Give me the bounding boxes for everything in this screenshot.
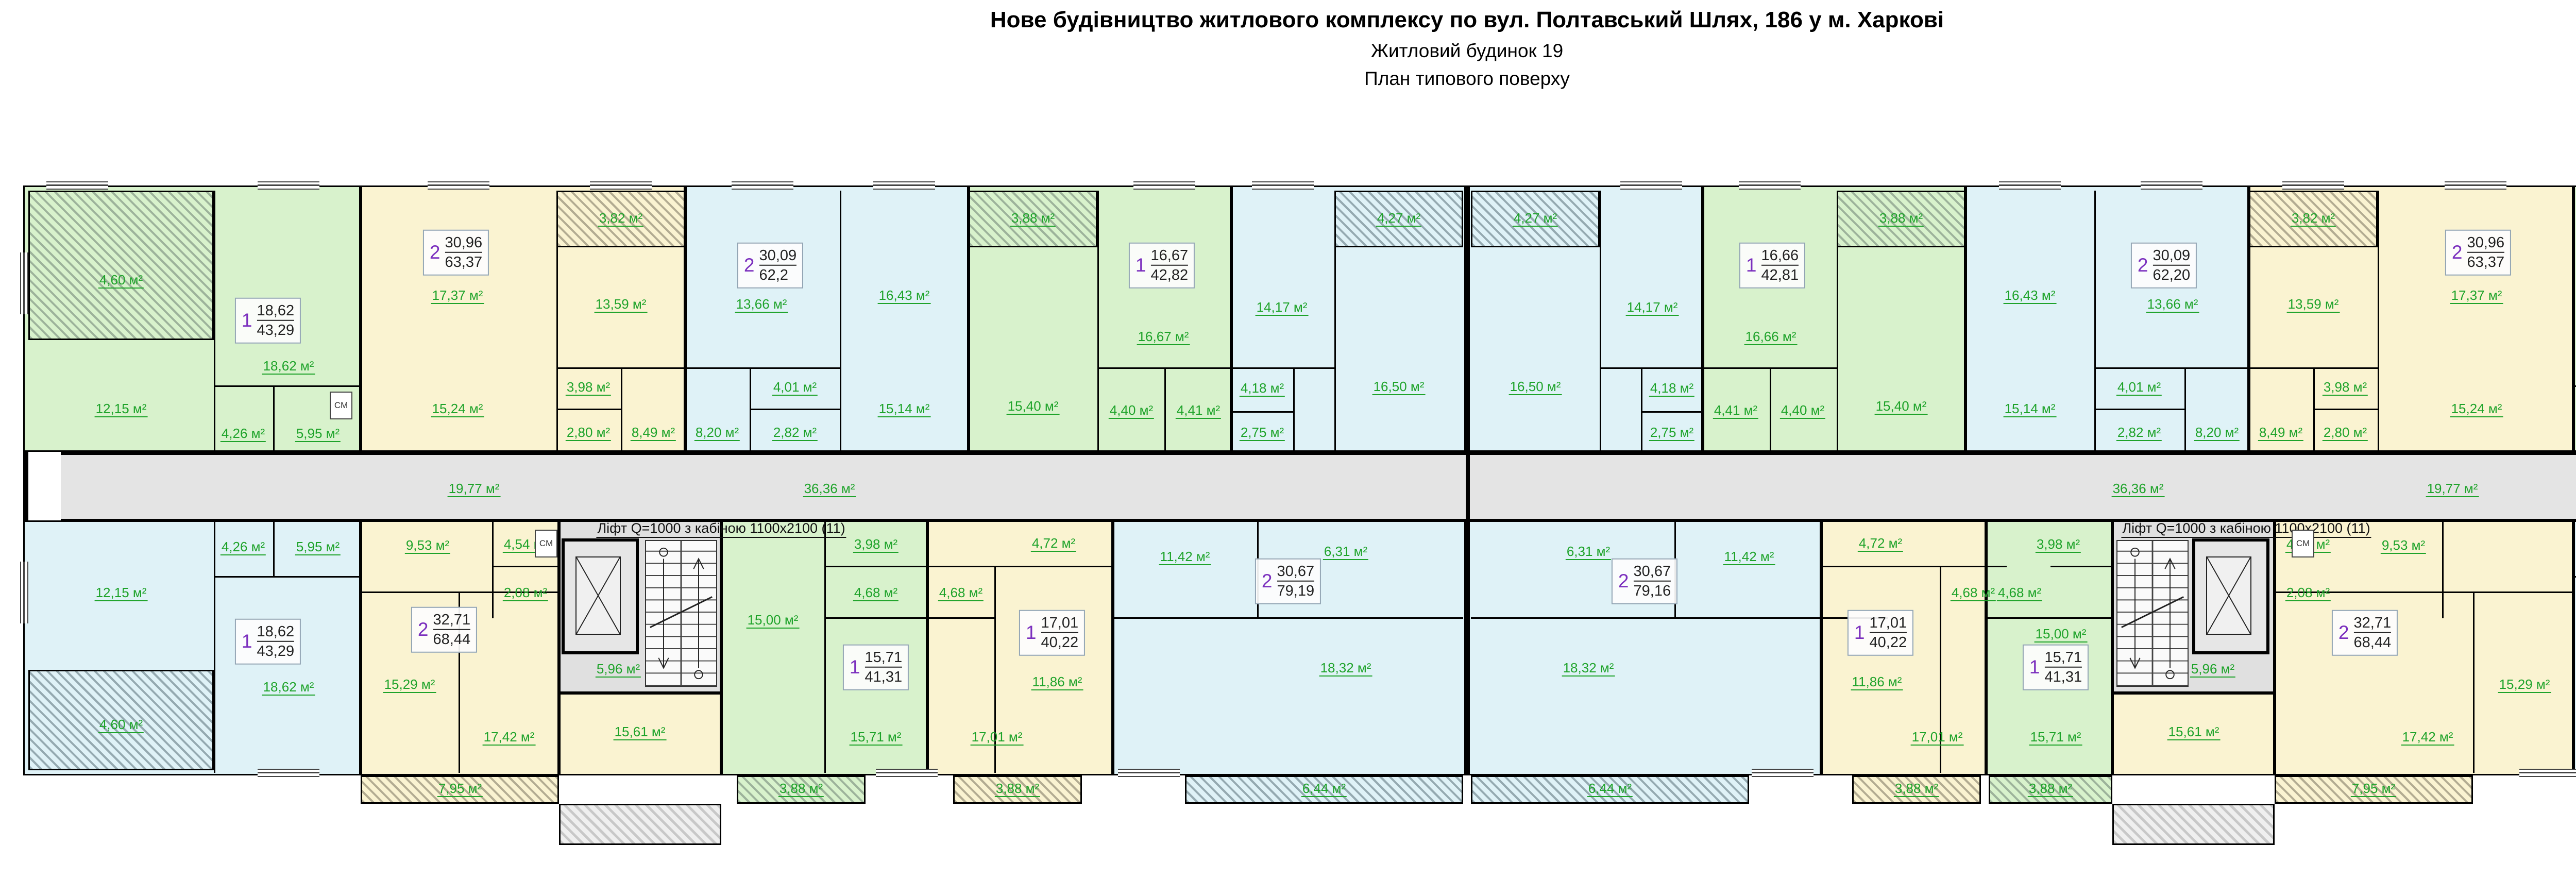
apartment-rooms-count: 2 [1618, 570, 1629, 592]
interior-wall-19 [1600, 367, 1703, 369]
room-area-label: 17,01 м² [1911, 730, 1964, 746]
interior-wall-7 [840, 191, 841, 452]
total-area-value: 68,44 [2354, 633, 2392, 652]
living-area-value: 17,01 [1870, 614, 1907, 633]
total-area-value: 43,29 [257, 321, 295, 340]
balcony-area-label: 3,82 м² [598, 211, 643, 227]
interior-wall-16 [1293, 367, 1295, 452]
interior-wall-34 [2573, 385, 2576, 387]
room-area-label: 3,98 м² [853, 537, 899, 553]
window [1752, 769, 1814, 777]
interior-wall-13 [1164, 367, 1166, 452]
living-area-value: 32,71 [2354, 614, 2392, 633]
balcony-area-label: 3,88 м² [1878, 211, 1924, 227]
room-area-label: 16,43 м² [2004, 289, 2057, 304]
room-area-label: 16,43 м² [878, 289, 931, 304]
interior-wall-60 [2473, 591, 2475, 773]
interior-wall-32 [2313, 409, 2378, 410]
total-area-value: 41,31 [865, 668, 903, 686]
room-area-label: 9,53 м² [405, 538, 450, 554]
room-area-label: 8,20 м² [2194, 426, 2240, 441]
room-area-label: 8,49 м² [2258, 426, 2303, 441]
room-area-label: 2,75 м² [1240, 426, 1285, 441]
interior-wall-1 [214, 385, 361, 387]
total-area-value: 43,29 [257, 642, 295, 661]
room-area-label: 4,18 м² [1240, 381, 1285, 397]
interior-wall-11 [1097, 191, 1099, 452]
room-area-label: 18,32 м² [1319, 661, 1372, 677]
apartment-rooms-count: 2 [744, 255, 755, 276]
room-area-label: 8,20 м² [694, 426, 740, 441]
room-area-label: 3,98 м² [2036, 537, 2081, 553]
apartment-areas: 30,9663,37 [2467, 233, 2505, 272]
interior-wall-38 [273, 520, 275, 577]
interior-wall-62 [2573, 576, 2576, 578]
room-area-label: 2,80 м² [2323, 426, 2368, 441]
interior-wall-20 [1641, 367, 1642, 452]
room-area-label: 15,71 м² [850, 730, 903, 746]
balcony-area-label: 3,88 м² [1010, 211, 1056, 227]
interior-wall-25 [2094, 191, 2096, 452]
room-area-label: 16,66 м² [1744, 330, 1798, 345]
window [1118, 769, 1180, 777]
window-side [20, 562, 28, 623]
room-area-label: 2,82 м² [2116, 426, 2162, 441]
window [1252, 181, 1314, 190]
room-area-label: 4,26 м² [221, 427, 266, 442]
apartment-areas: 18,6243,29 [257, 301, 295, 340]
apartment-areas: 32,7168,44 [2354, 614, 2392, 652]
interior-wall-6 [556, 409, 621, 410]
apartment-areas: 18,6243,29 [257, 622, 295, 661]
total-area-value: 63,37 [445, 253, 483, 272]
apartment-areas: 30,6779,16 [1634, 562, 1671, 601]
washing-machine-marker: СМ [535, 530, 557, 557]
total-area-value: 40,22 [1041, 633, 1079, 652]
apartment-areas: 16,6642,81 [1761, 246, 1799, 285]
window [590, 181, 652, 190]
room-area-label: 5,95 м² [295, 540, 341, 555]
room-area-label: 18,62 м² [262, 359, 315, 375]
window [428, 181, 489, 190]
apartment-info-box-4: 116,6642,81 [1739, 243, 1805, 289]
room-area-label: 2,80 м² [566, 426, 611, 441]
apartment-rooms-count: 1 [2029, 656, 2040, 678]
living-area-value: 30,09 [2153, 246, 2191, 266]
apartment-info-box-10: 115,7141,31 [843, 645, 909, 690]
apartment-info-box-11: 117,0140,22 [1019, 610, 1085, 656]
room-area-label: 6,31 м² [1323, 545, 1368, 560]
total-area-value: 62,20 [2153, 266, 2191, 284]
plan-subtitle: План типового поверху [0, 68, 2576, 90]
interior-wall-46 [927, 566, 1113, 567]
room-area-label: 4,68 м² [1951, 586, 1996, 601]
interior-wall-26 [2094, 367, 2249, 369]
window [2445, 181, 2506, 190]
central-corridor [61, 452, 2576, 522]
living-area-value: 16,66 [1761, 246, 1799, 266]
interior-wall-21 [1641, 411, 1703, 413]
room-area-label: 2,82 м² [772, 426, 818, 441]
entrance-porch-0 [559, 804, 721, 845]
apartment-areas: 17,0140,22 [1041, 614, 1079, 652]
living-area-value: 32,71 [433, 611, 471, 630]
interior-wall-5 [621, 367, 622, 452]
apt-1-green-top-far-right [2573, 185, 2576, 452]
room-area-label: 4,01 м² [2116, 380, 2162, 396]
room-area-label: 36,36 м² [2112, 482, 2165, 497]
room-area-label: 13,59 м² [595, 297, 648, 313]
interior-wall-0 [214, 191, 215, 452]
room-area-label: 4,18 м² [1649, 381, 1694, 397]
room-area-label: 13,66 м² [2146, 297, 2199, 313]
interior-wall-53 [1821, 566, 2007, 567]
apartment-areas: 16,6742,82 [1151, 246, 1189, 285]
room-area-label: 15,24 м² [2450, 402, 2503, 417]
room-area-label: 15,00 м² [2035, 627, 2088, 643]
window [2282, 181, 2344, 190]
balcony-area-label: 3,88 м² [1894, 782, 1939, 797]
apartment-info-box-13: 230,6779,16 [1612, 559, 1677, 604]
balcony-area-label: 4,27 м² [1513, 211, 1558, 227]
page-title: Нове будівництво житлового комплексу по … [0, 7, 2576, 33]
room-area-label: 13,66 м² [735, 297, 788, 313]
balcony-area-label: 3,88 м² [995, 782, 1040, 797]
balcony-area-label: 3,88 м² [2028, 782, 2073, 797]
elevator-note: Ліфт Q=1000 з кабіною 1100х2100 (11) [2121, 521, 2371, 538]
floor-plan-page: Нове будівництво житлового комплексу по … [0, 0, 2576, 896]
balcony-area-label: 3,82 м² [2291, 211, 2336, 227]
interior-wall-56 [2050, 566, 2112, 567]
room-area-label: 17,42 м² [2401, 730, 2454, 746]
apartment-rooms-count: 2 [430, 242, 440, 263]
apartment-areas: 17,0140,22 [1870, 614, 1907, 652]
living-area-value: 30,96 [2467, 233, 2505, 253]
room-area-label: 2,75 м² [1649, 426, 1694, 441]
room-area-label: 15,61 м² [2167, 725, 2221, 740]
room-area-label: 4,40 м² [1109, 403, 1154, 419]
window [46, 181, 108, 190]
room-area-label: 4,26 м² [221, 540, 266, 555]
room-area-label: 4,72 м² [1031, 536, 1076, 552]
total-area-value: 68,44 [433, 630, 471, 649]
interior-wall-17 [1231, 411, 1293, 413]
apartment-info-box-3: 116,6742,82 [1129, 243, 1195, 289]
interior-wall-29 [2378, 191, 2379, 452]
interior-wall-2 [273, 385, 275, 452]
apartment-info-box-12: 230,6779,19 [1255, 559, 1321, 604]
room-area-label: 8,49 м² [631, 426, 676, 441]
washing-machine-marker: СМ [2292, 530, 2314, 557]
apartment-info-box-2: 230,0962,2 [737, 243, 803, 289]
living-area-value: 30,67 [1277, 562, 1315, 582]
interior-wall-44 [824, 566, 927, 567]
apartment-info-box-8: 118,6243,29 [235, 619, 301, 665]
window [1739, 181, 1801, 190]
interior-wall-45 [824, 617, 927, 619]
entrance-porch-1 [2112, 804, 2275, 845]
balcony-area-label: 6,44 м² [1587, 782, 1633, 797]
apartment-info-box-6: 230,9663,37 [2445, 230, 2511, 276]
room-area-label: 14,17 м² [1626, 300, 1679, 316]
apartment-rooms-count: 1 [850, 656, 860, 678]
window [732, 181, 793, 190]
apartment-rooms-count: 2 [418, 619, 429, 640]
balcony-area-label: 4,27 м² [1376, 211, 1421, 227]
building-subtitle: Житловий будинок 19 [0, 40, 2576, 62]
balcony-area-label: 7,95 м² [437, 782, 483, 797]
window-side [20, 252, 28, 314]
room-area-label: 15,40 м² [1007, 399, 1060, 415]
room-area-label: 11,86 м² [1031, 675, 1083, 690]
room-area-label: 17,42 м² [483, 730, 536, 746]
room-area-label: 4,41 м² [1713, 403, 1758, 419]
apartment-rooms-count: 2 [1262, 570, 1273, 592]
total-area-value: 41,31 [2045, 668, 2082, 686]
interior-wall-50 [1113, 617, 1463, 619]
elevator-shaft-icon [575, 556, 621, 635]
balcony-area-label: 3,88 м² [778, 782, 824, 797]
room-area-label: 4,41 м² [1176, 403, 1221, 419]
apartment-info-box-16: 232,7168,44 [2332, 610, 2398, 656]
room-area-label: 13,59 м² [2287, 297, 2340, 313]
total-area-value: 62,2 [759, 266, 797, 284]
interior-wall-15 [1231, 367, 1334, 369]
room-area-label: 17,01 м² [971, 730, 1024, 746]
apartment-areas: 30,0962,2 [759, 246, 797, 285]
room-area-label: 16,67 м² [1137, 330, 1190, 345]
window [258, 769, 319, 777]
apartment-rooms-count: 1 [242, 310, 252, 331]
room-area-label: 4,68 м² [938, 586, 984, 601]
room-area-label: 3,98 м² [566, 380, 611, 396]
room-area-label: 16,50 м² [1509, 380, 1562, 395]
room-area-label: 15,14 м² [2004, 402, 2057, 417]
room-area-label: 15,29 м² [2498, 678, 2551, 693]
interior-wall-39 [492, 520, 494, 618]
apartment-areas: 30,6779,19 [1277, 562, 1315, 601]
total-area-value: 63,37 [2467, 253, 2505, 272]
staircase-0 [645, 540, 717, 687]
window [873, 181, 935, 190]
balcony-area-label: 4,60 м² [98, 273, 144, 289]
apartment-info-box-1: 230,9663,37 [423, 230, 489, 276]
interior-wall-37 [214, 576, 361, 578]
room-area-label: 36,36 м² [803, 482, 856, 497]
interior-wall-52 [1471, 617, 1821, 619]
elevator-note: Ліфт Q=1000 з кабіною 1100х2100 (11) [596, 521, 846, 538]
room-area-label: 17,37 м² [431, 289, 484, 304]
room-area-label: 9,53 м² [2381, 538, 2426, 554]
total-area-value: 42,82 [1151, 266, 1189, 284]
apartment-rooms-count: 1 [1136, 255, 1146, 276]
room-area-label: 19,77 м² [2426, 482, 2479, 497]
room-area-label: 11,42 м² [1723, 550, 1775, 565]
washing-machine-marker: СМ [330, 392, 352, 419]
room-area-label: 3,98 м² [2323, 380, 2368, 396]
interior-wall-8 [685, 367, 840, 369]
room-area-label: 12,15 м² [95, 586, 148, 601]
interior-wall-24 [1770, 367, 1771, 452]
room-area-label: 4,72 м² [1858, 536, 1903, 552]
living-area-value: 30,67 [1634, 562, 1671, 582]
room-area-label: 6,31 м² [1566, 545, 1611, 560]
room-area-label: 15,14 м² [878, 402, 931, 417]
interior-wall-10 [750, 409, 840, 410]
living-area-value: 30,09 [759, 246, 797, 266]
room-area-label: 4,68 м² [853, 586, 899, 601]
apartment-rooms-count: 2 [2452, 242, 2463, 263]
room-area-label: 14,17 м² [1256, 300, 1309, 316]
elevator-shaft-icon [2206, 556, 2251, 635]
room-area-label: 4,68 м² [1997, 586, 2042, 601]
room-area-label: 4,40 м² [1780, 403, 1825, 419]
room-area-label: 18,32 м² [1562, 661, 1615, 677]
balcony-area-label: 4,60 м² [98, 718, 144, 733]
room-area-label: 19,77 м² [448, 482, 501, 497]
total-area-value: 79,16 [1634, 582, 1671, 600]
apartment-rooms-count: 1 [1854, 622, 1865, 644]
room-area-label: 15,61 м² [614, 725, 667, 740]
apt-1-blue-bottom-far-right [2573, 520, 2576, 775]
balcony-area-label: 7,95 м² [2351, 782, 2396, 797]
apartment-rooms-count: 1 [1026, 622, 1037, 644]
apartment-areas: 30,9663,37 [445, 233, 483, 272]
interior-wall-36 [214, 520, 215, 773]
room-area-label: 4,01 м² [772, 380, 818, 396]
interior-wall-18 [1600, 191, 1601, 452]
total-area-value: 42,81 [1761, 266, 1799, 284]
room-area-label: 5,96 м² [2190, 662, 2235, 678]
room-area-label: 15,71 м² [2029, 730, 2082, 746]
apartment-rooms-count: 2 [2338, 622, 2349, 644]
window [1620, 181, 1682, 190]
room-area-label: 15,40 м² [1875, 399, 1928, 415]
apartment-areas: 15,7141,31 [865, 648, 903, 687]
room-area-label: 2,08 м² [2285, 586, 2331, 601]
apartment-areas: 30,0962,20 [2153, 246, 2191, 285]
room-area-label: 2,08 м² [503, 586, 548, 601]
window [1999, 181, 2061, 190]
apartment-info-box-15: 115,7141,31 [2023, 645, 2089, 690]
living-area-value: 18,62 [257, 622, 295, 642]
apartment-rooms-count: 2 [2138, 255, 2148, 276]
apartment-info-box-9: 232,7168,44 [411, 607, 477, 653]
total-area-value: 40,22 [1870, 633, 1907, 652]
apartment-info-box-0: 118,6243,29 [235, 298, 301, 344]
living-area-value: 17,01 [1041, 614, 1079, 633]
interior-wall-48 [927, 617, 994, 619]
room-area-label: 15,00 м² [747, 613, 800, 629]
interior-wall-57 [1986, 617, 2112, 619]
living-area-value: 18,62 [257, 301, 295, 321]
room-area-label: 12,15 м² [95, 402, 148, 417]
room-area-label: 18,62 м² [262, 680, 315, 696]
apartment-info-box-5: 230,0962,20 [2131, 243, 2197, 289]
window [258, 181, 319, 190]
apartment-areas: 32,7168,44 [433, 611, 471, 649]
interior-wall-43 [824, 520, 826, 773]
room-area-label: 15,24 м² [431, 402, 484, 417]
apartment-rooms-count: 1 [1746, 255, 1757, 276]
apartment-info-box-14: 117,0140,22 [1848, 610, 1913, 656]
balcony-0 [28, 191, 214, 340]
living-area-value: 15,71 [2045, 648, 2082, 668]
window [2141, 181, 2202, 190]
room-area-label: 11,42 м² [1159, 550, 1211, 565]
living-area-value: 15,71 [865, 648, 903, 668]
living-area-value: 30,96 [445, 233, 483, 253]
room-area-label: 11,86 м² [1851, 675, 1903, 690]
room-area-label: 17,37 м² [2450, 289, 2503, 304]
room-area-label: 15,29 м² [383, 678, 436, 693]
living-area-value: 16,67 [1151, 246, 1189, 266]
window [1133, 181, 1195, 190]
window [876, 769, 938, 777]
apartment-areas: 15,7141,31 [2045, 648, 2082, 687]
room-area-label: 16,50 м² [1372, 380, 1426, 395]
center-section-wall [1466, 185, 1470, 775]
room-area-label: 5,95 м² [295, 427, 341, 442]
window [2519, 769, 2576, 777]
interior-wall-27 [2184, 367, 2186, 452]
balcony-area-label: 6,44 м² [1301, 782, 1347, 797]
interior-wall-58 [2442, 520, 2444, 618]
total-area-value: 79,19 [1277, 582, 1315, 600]
staircase-1 [2116, 540, 2189, 687]
room-area-label: 5,96 м² [596, 662, 641, 678]
apartment-rooms-count: 1 [242, 631, 252, 652]
interior-wall-28 [2094, 409, 2184, 410]
interior-wall-41 [492, 566, 559, 567]
